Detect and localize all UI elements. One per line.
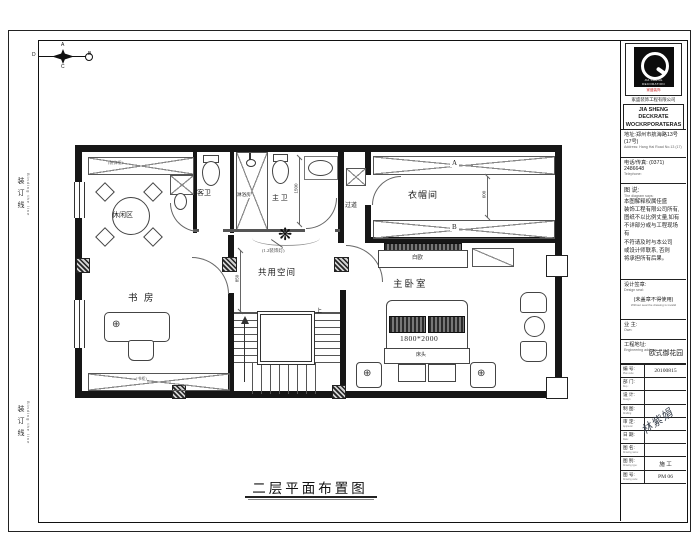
row-label-en: Drawing name: bbox=[623, 451, 641, 454]
row-label-en: Dep.: bbox=[623, 385, 641, 388]
room-label-master-bath: 主 卫 bbox=[272, 193, 288, 203]
pillow bbox=[428, 316, 465, 333]
row-label-en: Drawing type: bbox=[623, 464, 641, 467]
logo-box: JIA SHENG DECORATION 家盛装饰 bbox=[625, 43, 682, 96]
row-label-cell: 设 计: Design: bbox=[621, 391, 645, 403]
cabinet-note: (装饰柜) bbox=[108, 160, 123, 166]
disclaimer-line: 或设计师联系, 否则 bbox=[624, 247, 683, 255]
bedside-drawer bbox=[428, 364, 456, 382]
disclaimer-line: 装饰工程有限公司所有, bbox=[624, 206, 683, 214]
stairs-up-label: 上 bbox=[316, 306, 322, 315]
stair-well bbox=[260, 314, 312, 362]
up-arrow-icon bbox=[241, 316, 249, 324]
row-label-cell: 图 名: Drawing name: bbox=[621, 444, 645, 456]
headboard bbox=[384, 348, 470, 364]
pilaster-column bbox=[546, 377, 568, 399]
room-label-shared: 共用空间 bbox=[258, 266, 296, 278]
ceiling-lamp-icon: ❋ bbox=[278, 226, 292, 243]
disclaimer-line: 图纸不以比例丈量,如有 bbox=[624, 214, 683, 222]
armchair-icon bbox=[520, 341, 547, 362]
disclaimer-line: 不符请及时与本公司 bbox=[624, 239, 683, 247]
binding-line-text: 装订线 bbox=[16, 405, 26, 441]
row-label: 制 图: bbox=[623, 406, 643, 412]
room-label-cloakroom: 衣帽间 bbox=[408, 188, 438, 201]
side-table-icon bbox=[524, 316, 545, 337]
dimension-text: 850 bbox=[234, 275, 239, 283]
column bbox=[222, 257, 237, 272]
binding-line-text-en: Binding the line bbox=[26, 173, 31, 216]
cabinet bbox=[346, 168, 366, 186]
row-label-en: Drafting: bbox=[623, 412, 641, 415]
section-marker-b: B bbox=[450, 223, 459, 231]
titleblock-row: 图 名: Drawing name: bbox=[621, 444, 686, 457]
titleblock-row: 图 别: Drawing type: 施 工 bbox=[621, 457, 686, 470]
disclaimer-line: 不详部分或与工程现场有 bbox=[624, 222, 683, 238]
chair-icon bbox=[128, 340, 154, 361]
compass-icon: A C D B bbox=[36, 42, 90, 72]
row-label-en: Design: bbox=[623, 398, 641, 401]
disclaimer-text: 本图解释权属佳盛装饰工程有限公司所有,图纸不以比例丈量,如有不详部分或与工程现场… bbox=[624, 198, 683, 263]
row-value: 施 工 bbox=[645, 457, 686, 469]
basin-icon bbox=[308, 160, 333, 176]
title-underline bbox=[245, 496, 377, 498]
row-label-cell: 制 图: Drafting: bbox=[621, 405, 645, 417]
dimension-line bbox=[487, 176, 488, 218]
wardrobe bbox=[373, 156, 555, 175]
plan-title: 二层平面布置图 bbox=[210, 477, 410, 497]
lamp-symbol: ⊕ bbox=[363, 369, 371, 379]
binding-line-label: 装订线 Binding the line bbox=[16, 150, 32, 240]
row-label-cell: 编 号: Plan code: bbox=[621, 365, 645, 377]
compass-needle bbox=[60, 49, 66, 64]
disclaimer-line: 将承担所有后果。 bbox=[624, 255, 683, 263]
dimension-text: 1500 bbox=[294, 183, 299, 193]
row-value: PM 06 bbox=[645, 471, 686, 483]
room-label-study: 书 房 bbox=[128, 290, 155, 304]
title-block: JIA SHENG DECORATION 家盛装饰 家盛装饰工程有限公司 JIA… bbox=[620, 40, 686, 521]
compass-west: D bbox=[32, 52, 36, 58]
room-label-leisure: 休闲区 bbox=[112, 210, 133, 220]
up-arrow-line bbox=[244, 322, 245, 382]
row-label: 图 号: bbox=[623, 472, 643, 478]
diagram-says-label: 图 说: bbox=[624, 185, 683, 194]
row-label-en: Drawing code: bbox=[623, 478, 641, 481]
company-address: 地址:郑州市航海路13号(17号) bbox=[624, 131, 683, 145]
compass-north: A bbox=[61, 42, 64, 48]
binding-line-text-en: Binding the line bbox=[26, 401, 31, 444]
column bbox=[76, 258, 90, 273]
titleblock-row: 设 计: Design: bbox=[621, 391, 686, 404]
company-phone-en: Telephone: bbox=[624, 172, 683, 176]
titleblock-row: 编 号: Plan code: 20100815 bbox=[621, 365, 686, 378]
seal-note-en: Without seal the drawing is invalid bbox=[624, 303, 683, 307]
bookcase bbox=[88, 373, 230, 391]
site-value: 欧式御花园 bbox=[649, 347, 683, 357]
armchair-icon bbox=[520, 292, 547, 313]
seal-note: (未盖章不得使用) bbox=[624, 296, 683, 303]
wall bbox=[230, 145, 234, 233]
drawing-sheet: 装订线 Binding the line 装订线 Binding the lin… bbox=[0, 0, 700, 560]
titleblock-row: 部 门: Dep.: bbox=[621, 378, 686, 391]
column bbox=[332, 385, 346, 399]
corner-cabinet bbox=[170, 175, 194, 195]
disclaimer-line: 本图解释权属佳盛 bbox=[624, 198, 683, 206]
tv-cabinet bbox=[378, 250, 468, 268]
compass-east-circle bbox=[85, 53, 93, 61]
door-opening bbox=[199, 228, 223, 234]
company-name-en-line2: WOCKRPORATERAS bbox=[624, 122, 683, 129]
owner-label: 业 主: bbox=[624, 321, 683, 328]
stairs bbox=[252, 362, 322, 394]
window bbox=[74, 182, 85, 218]
bookcase-note: (书柜) bbox=[136, 376, 147, 382]
wall bbox=[340, 290, 346, 398]
wall bbox=[75, 145, 562, 152]
logo-caption: JIA SHENG DECORATION bbox=[634, 78, 674, 86]
headboard-label: 床头 bbox=[416, 351, 426, 358]
row-value bbox=[645, 391, 686, 403]
logo-ring bbox=[641, 52, 669, 80]
row-value: 20100815 bbox=[645, 365, 686, 377]
bed-size-label: 1800*2000 bbox=[398, 334, 440, 343]
tv-cabinet-label: 白欧 bbox=[412, 253, 423, 261]
title-underline bbox=[248, 499, 374, 500]
design-seal-label: 设计签章: bbox=[624, 281, 683, 288]
company-logo-icon: JIA SHENG DECORATION bbox=[634, 47, 674, 87]
lamp-symbol: ⊕ bbox=[477, 369, 485, 379]
room-label-master-bedroom: 主卧室 bbox=[393, 276, 428, 290]
row-label-cell: 图 别: Drawing type: bbox=[621, 457, 645, 469]
bench bbox=[472, 248, 514, 267]
lamp-note: (1.2装饰灯) bbox=[262, 248, 285, 254]
company-address-en: Address: Hang Hai Road No.13 (17) bbox=[624, 145, 683, 149]
row-label-en: Date: bbox=[623, 438, 641, 441]
owner-label-en: Own: bbox=[624, 328, 683, 332]
row-value bbox=[645, 444, 686, 456]
dimension-text: 600 bbox=[481, 191, 486, 199]
company-name-en-line1: JIA SHENG DECKRATE bbox=[624, 107, 683, 122]
binding-line-text: 装订线 bbox=[16, 177, 26, 213]
lamp-symbol: ⊕ bbox=[112, 320, 120, 330]
room-label-guest-bath: 客卫 bbox=[197, 188, 211, 198]
compass-south: C bbox=[61, 64, 65, 70]
window bbox=[74, 300, 85, 348]
row-label-en: Plan code: bbox=[623, 372, 641, 375]
wall bbox=[228, 235, 234, 257]
room-label-corridor: 过道 bbox=[345, 200, 357, 209]
dimension-line bbox=[240, 250, 241, 312]
pillow bbox=[389, 316, 426, 333]
cabinet bbox=[88, 157, 194, 175]
wardrobe bbox=[373, 220, 555, 239]
binding-line-label: 装订线 Binding the line bbox=[16, 378, 32, 468]
section-marker-a: A bbox=[450, 159, 459, 167]
titleblock-table: 编 号: Plan code: 20100815 部 门: Dep.: bbox=[621, 364, 686, 484]
bedside-drawer bbox=[398, 364, 426, 382]
room-label-shower: 淋浴房 bbox=[237, 192, 251, 198]
company-name-cn: 家盛装饰工程有限公司 bbox=[621, 97, 686, 103]
design-seal-label-en: Design seal: bbox=[624, 288, 683, 292]
company-phone: 电话/传真: (0371) 2486648 bbox=[624, 159, 683, 172]
logo-subtitle-red: 家盛装饰 bbox=[628, 88, 679, 93]
titleblock-row: 图 号: Drawing code: PM 06 bbox=[621, 471, 686, 484]
row-label-cell: 图 号: Drawing code: bbox=[621, 471, 645, 483]
dimension-line bbox=[299, 157, 300, 225]
row-label-cell: 部 门: Dep.: bbox=[621, 378, 645, 390]
shower-head-icon bbox=[246, 159, 256, 167]
company-name-en: JIA SHENG DECKRATE WOCKRPORATERAS bbox=[623, 104, 684, 130]
pilaster-column bbox=[546, 255, 568, 277]
row-value bbox=[645, 378, 686, 390]
row-label-cell: 日 期: Date: bbox=[621, 431, 645, 443]
